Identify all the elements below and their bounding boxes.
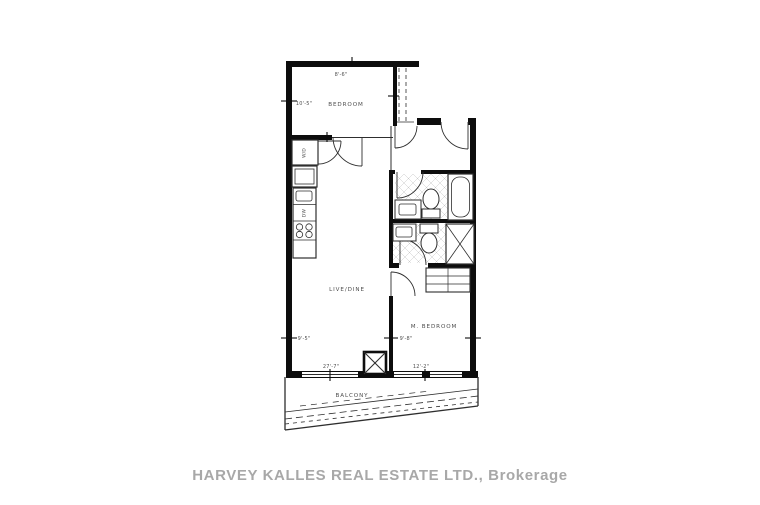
brokerage-watermark: HARVEY KALLES REAL ESTATE LTD., Brokerag… [0, 467, 760, 484]
bathroom1-door-swing [397, 172, 423, 198]
live-dine-width-dim: 27'-7" [323, 364, 339, 370]
dishwasher-label: DW [302, 208, 308, 217]
vanity-sink-fixture [395, 200, 421, 219]
live-dine-label: LIVE/DINE [329, 287, 365, 293]
balcony-outline [285, 377, 478, 430]
bathroom-2 [393, 224, 474, 264]
bedroom-width-dim: 8'-6" [335, 72, 348, 78]
balcony-label: BALCONY [336, 393, 369, 399]
laundry-door-swing [318, 141, 341, 164]
bedroom-closet-door-swing [395, 126, 417, 148]
bedroom-depth-dim: 10'-5" [296, 101, 312, 107]
master-bedroom-door-swing [391, 272, 415, 296]
floor-plan: 8'-6" 10'-5" BEDROOM LIVE/DINE 9'-5" 27'… [0, 0, 760, 505]
kitchen-sink-fixture [296, 191, 312, 201]
master-bedroom-label: M. BEDROOM [411, 324, 458, 330]
column [364, 352, 386, 374]
bathtub-fixture [448, 174, 473, 220]
toilet-fixture-2 [420, 224, 438, 253]
washer-dryer-label: W/D [302, 148, 308, 158]
master-depth-dim: 9'-8" [400, 336, 413, 342]
bathroom-1 [395, 174, 473, 220]
master-closet [426, 268, 470, 292]
live-dine-depth-dim: 9'-5" [298, 336, 311, 342]
shower-fixture [446, 224, 474, 264]
floor-plan-page: 8'-6" 10'-5" BEDROOM LIVE/DINE 9'-5" 27'… [0, 0, 760, 505]
entry-door-swing [441, 122, 468, 149]
toilet-fixture [422, 189, 440, 218]
balcony-hatch [285, 389, 478, 424]
fridge-fixture [292, 166, 317, 187]
partitions [332, 68, 414, 170]
master-width-dim: 12'-2" [413, 364, 429, 370]
bedroom-label: BEDROOM [328, 102, 364, 108]
vanity-sink-fixture-2 [393, 224, 416, 241]
